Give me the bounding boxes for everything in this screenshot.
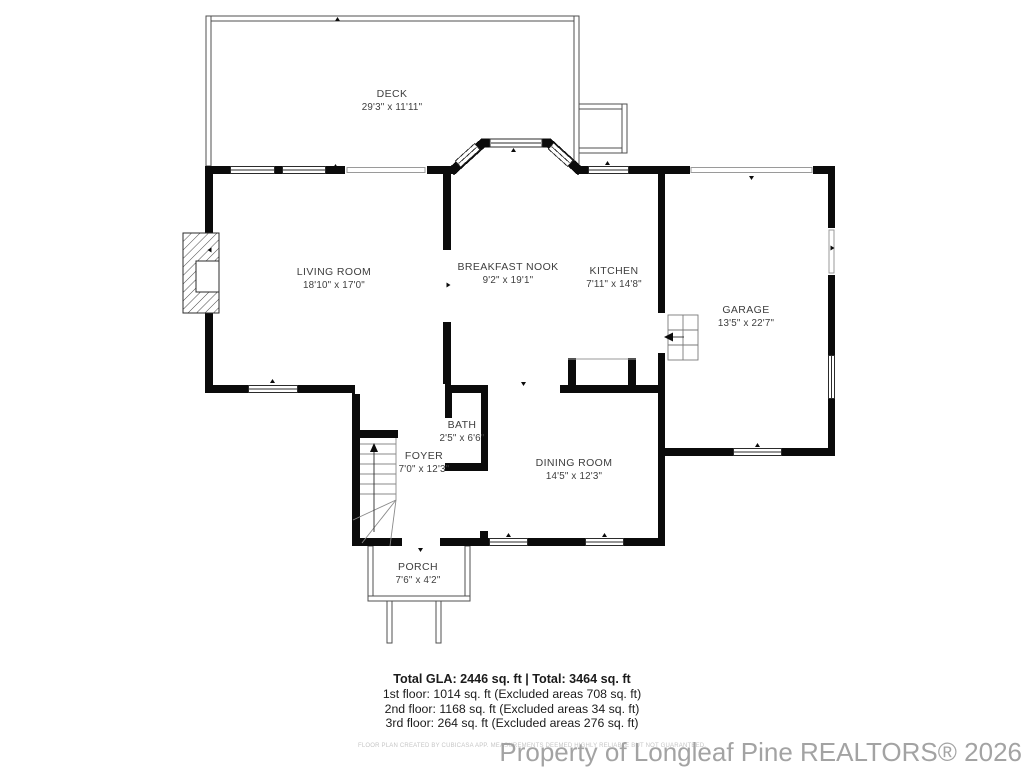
door-outlines bbox=[347, 168, 834, 274]
room-label-breakfast-nook: BREAKFAST NOOK 9'2" x 19'1" bbox=[457, 261, 558, 286]
total-gla-line: Total GLA: 2446 sq. ft | Total: 3464 sq.… bbox=[0, 672, 1024, 687]
room-name: BREAKFAST NOOK bbox=[457, 261, 558, 273]
room-dimensions: 7'6" x 4'2" bbox=[395, 575, 440, 586]
watermark: Property of Longleaf Pine REALTORS® 2026 bbox=[499, 737, 1022, 768]
deck-steps bbox=[579, 104, 627, 153]
room-name: DINING ROOM bbox=[536, 457, 613, 469]
room-name: DECK bbox=[362, 88, 423, 100]
room-dimensions: 29'3" x 11'11" bbox=[362, 102, 423, 113]
room-label-bath: BATH 2'5" x 6'6" bbox=[439, 419, 484, 444]
room-dimensions: 7'0" x 12'3" bbox=[399, 464, 450, 475]
room-dimensions: 7'11" x 14'8" bbox=[586, 279, 642, 290]
second-floor-line: 2nd floor: 1168 sq. ft (Excluded areas 3… bbox=[0, 702, 1024, 717]
wall-openings bbox=[205, 165, 835, 547]
floor-plan-drawing bbox=[0, 0, 1024, 768]
room-label-porch: PORCH 7'6" x 4'2" bbox=[395, 561, 440, 586]
room-name: KITCHEN bbox=[586, 265, 642, 277]
windows bbox=[231, 167, 835, 546]
room-label-deck: DECK 29'3" x 11'11" bbox=[362, 88, 423, 113]
room-dimensions: 18'10" x 17'0" bbox=[297, 280, 371, 291]
room-dimensions: 9'2" x 19'1" bbox=[457, 275, 558, 286]
garage-steps bbox=[664, 315, 698, 360]
room-name: BATH bbox=[439, 419, 484, 431]
room-name: PORCH bbox=[395, 561, 440, 573]
room-label-foyer: FOYER 7'0" x 12'3" bbox=[399, 450, 450, 475]
room-label-kitchen: KITCHEN 7'11" x 14'8" bbox=[586, 265, 642, 290]
bay-window bbox=[451, 139, 581, 172]
room-label-dining-room: DINING ROOM 14'5" x 12'3" bbox=[536, 457, 613, 482]
third-floor-line: 3rd floor: 264 sq. ft (Excluded areas 27… bbox=[0, 716, 1024, 731]
room-name: FOYER bbox=[399, 450, 450, 462]
area-summary: Total GLA: 2446 sq. ft | Total: 3464 sq.… bbox=[0, 672, 1024, 731]
room-name: GARAGE bbox=[718, 304, 774, 316]
room-dimensions: 2'5" x 6'6" bbox=[439, 433, 484, 444]
room-dimensions: 14'5" x 12'3" bbox=[536, 471, 613, 482]
first-floor-line: 1st floor: 1014 sq. ft (Excluded areas 7… bbox=[0, 687, 1024, 702]
porch-steps bbox=[387, 601, 441, 643]
floor-plan-page: DECK 29'3" x 11'11" LIVING ROOM 18'10" x… bbox=[0, 0, 1024, 768]
room-name: LIVING ROOM bbox=[297, 266, 371, 278]
room-label-garage: GARAGE 13'5" x 22'7" bbox=[718, 304, 774, 329]
walls bbox=[205, 166, 835, 546]
room-label-living-room: LIVING ROOM 18'10" x 17'0" bbox=[297, 266, 371, 291]
fireplace bbox=[183, 233, 219, 313]
room-dimensions: 13'5" x 22'7" bbox=[718, 318, 774, 329]
